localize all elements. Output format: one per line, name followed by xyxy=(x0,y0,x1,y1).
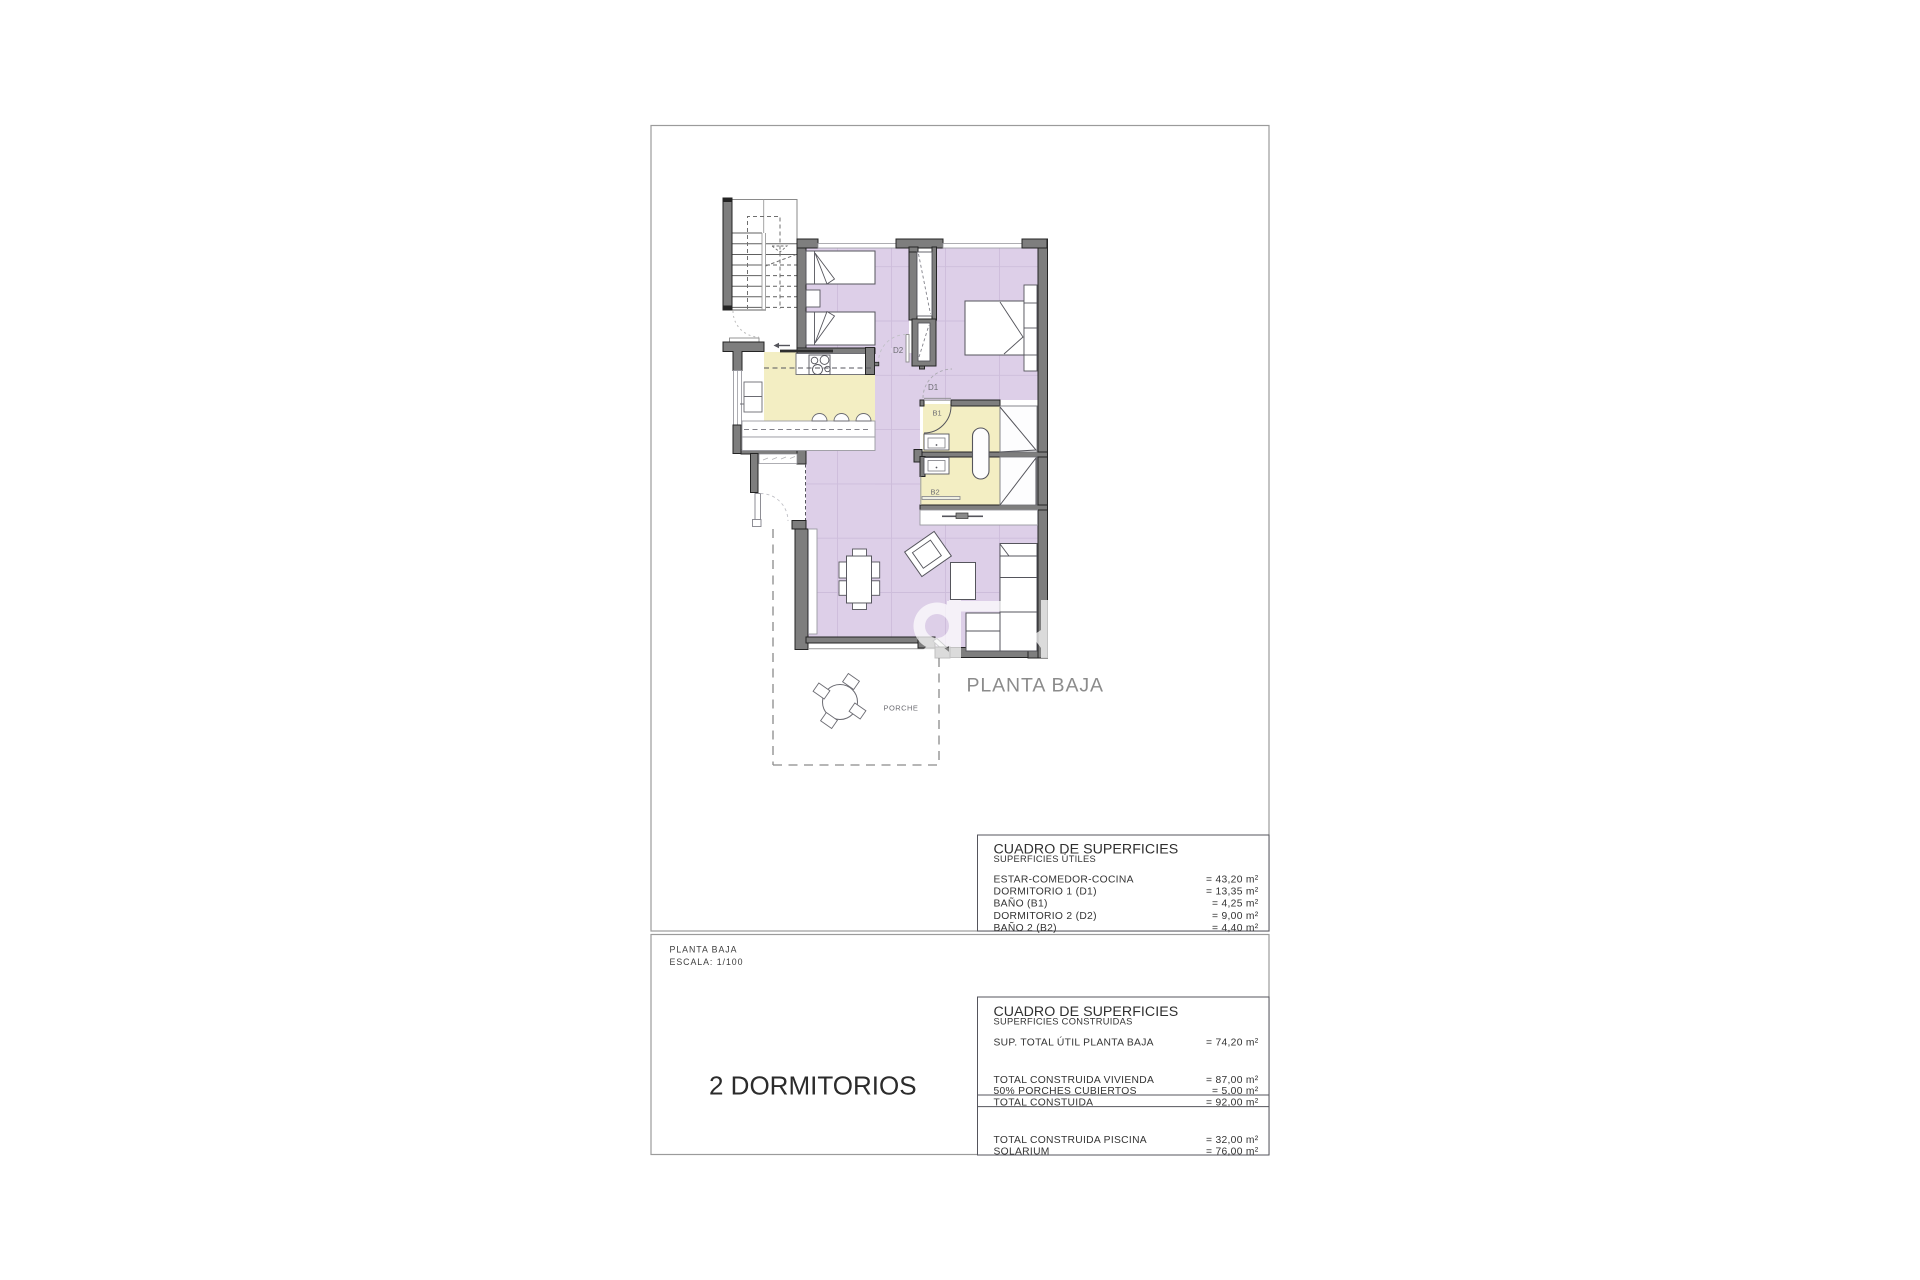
svg-text:SOLARIUM: SOLARIUM xyxy=(994,1147,1050,1158)
svg-text:TOTAL CONSTRUIDA PISCINA: TOTAL CONSTRUIDA PISCINA xyxy=(994,1135,1147,1146)
svg-text:= 4,40 m²: = 4,40 m² xyxy=(1212,923,1259,934)
svg-text:ESCALA: 1/100: ESCALA: 1/100 xyxy=(670,957,744,967)
svg-text:B2: B2 xyxy=(931,488,940,497)
svg-text:D1: D1 xyxy=(928,383,939,392)
svg-text:SUPERFICIES CONSTRUIDAS: SUPERFICIES CONSTRUIDAS xyxy=(994,1017,1133,1027)
svg-text:DORMITORIO 2 (D2): DORMITORIO 2 (D2) xyxy=(994,911,1097,922)
svg-text:= 9,00 m²: = 9,00 m² xyxy=(1212,911,1259,922)
svg-text:= 13,35 m²: = 13,35 m² xyxy=(1206,887,1259,898)
svg-text:= 4,25 m²: = 4,25 m² xyxy=(1212,899,1259,910)
svg-text:PORCHE: PORCHE xyxy=(884,704,919,713)
svg-text:D2: D2 xyxy=(893,346,904,355)
svg-text:PLANTA BAJA: PLANTA BAJA xyxy=(967,675,1104,697)
svg-text:BAÑO 2 (B2): BAÑO 2 (B2) xyxy=(994,921,1057,934)
svg-text:= 76,00 m²: = 76,00 m² xyxy=(1206,1147,1259,1158)
svg-text:TOTAL CONSTRUIDA VIVIENDA: TOTAL CONSTRUIDA VIVIENDA xyxy=(994,1075,1155,1086)
svg-text:2 DORMITORIOS: 2 DORMITORIOS xyxy=(709,1071,917,1101)
svg-text:50% PORCHES CUBIERTOS: 50% PORCHES CUBIERTOS xyxy=(994,1086,1137,1097)
svg-text:DORMITORIO 1 (D1): DORMITORIO 1 (D1) xyxy=(994,887,1097,898)
svg-text:ESTAR-COMEDOR-COCINA: ESTAR-COMEDOR-COCINA xyxy=(994,875,1134,886)
svg-text:= 74,20 m²: = 74,20 m² xyxy=(1206,1037,1259,1048)
svg-text:B1: B1 xyxy=(933,409,942,418)
svg-text:PLANTA BAJA: PLANTA BAJA xyxy=(670,945,738,955)
svg-text:SUP. TOTAL ÚTIL PLANTA BAJA: SUP. TOTAL ÚTIL PLANTA BAJA xyxy=(994,1035,1154,1048)
svg-text:= 87,00 m²: = 87,00 m² xyxy=(1206,1075,1259,1086)
svg-text:= 5,00 m²: = 5,00 m² xyxy=(1212,1086,1259,1097)
svg-text:= 32,00 m²: = 32,00 m² xyxy=(1206,1135,1259,1146)
svg-text:= 43,20 m²: = 43,20 m² xyxy=(1206,875,1259,886)
svg-text:BAÑO (B1): BAÑO (B1) xyxy=(994,897,1048,910)
svg-text:SUPERFICIES ÚTILES: SUPERFICIES ÚTILES xyxy=(994,854,1097,864)
